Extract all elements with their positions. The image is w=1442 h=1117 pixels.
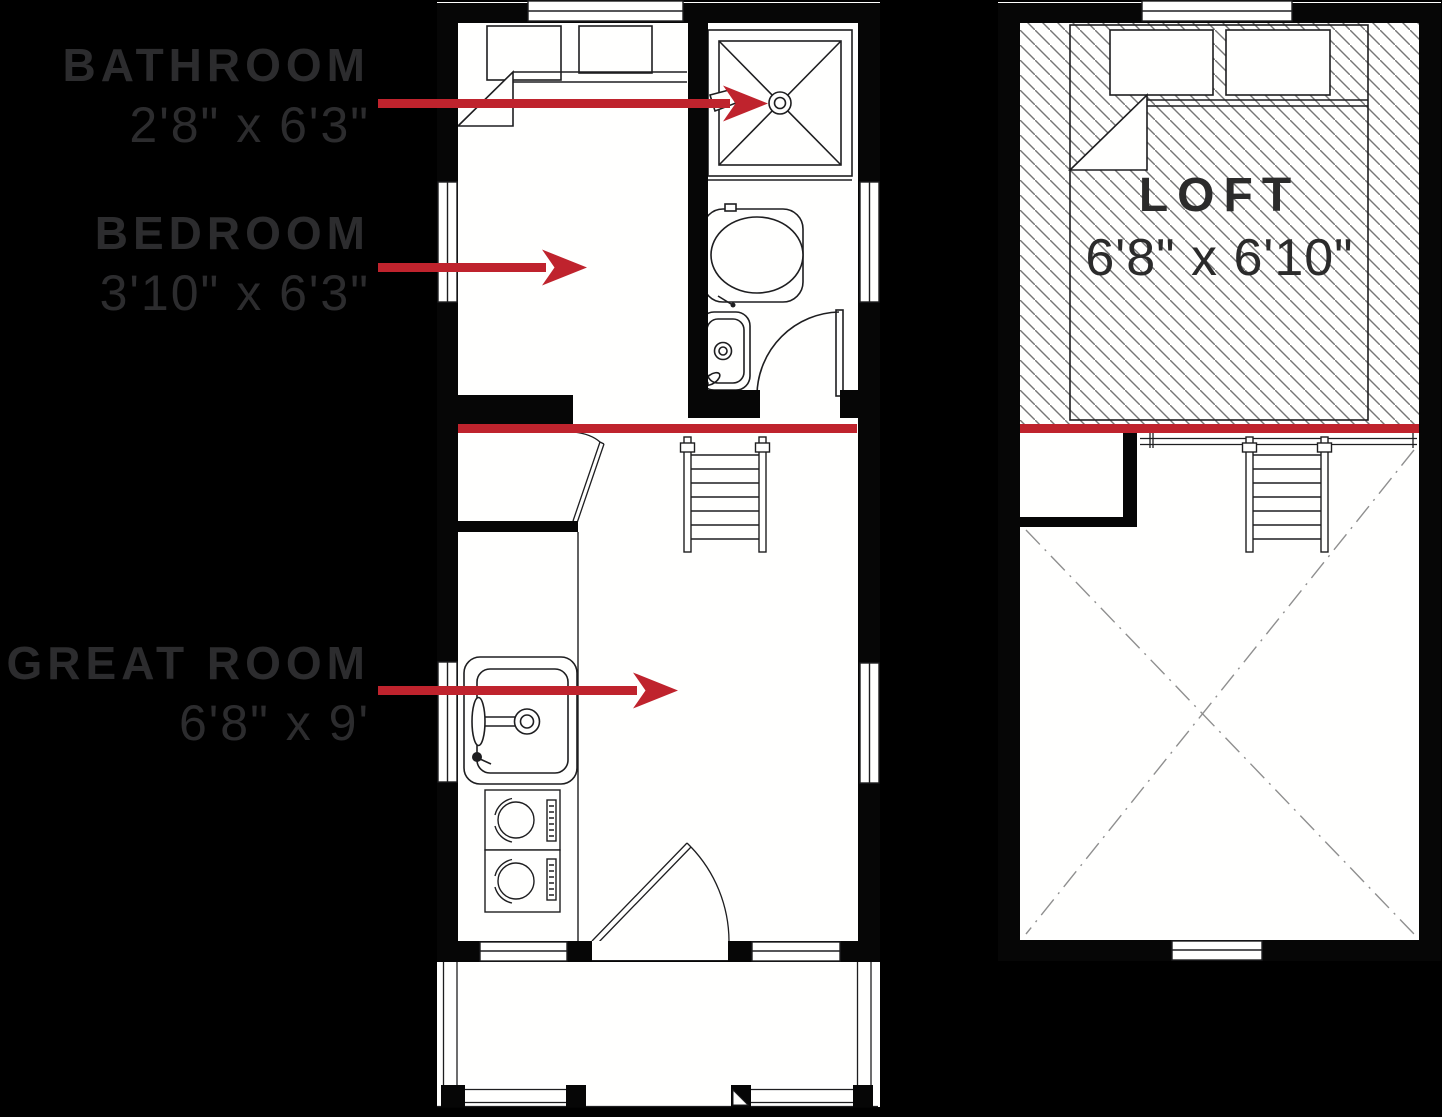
bedroom-label-group: BEDROOM 3'10" x 6'3" (0, 210, 370, 318)
shower-drain-icon (769, 92, 791, 114)
window-icon (1142, 1, 1292, 21)
toilet (703, 204, 803, 308)
window-icon (752, 942, 840, 961)
kitchen-sink (464, 657, 577, 784)
bathroom-dims: 2'8" x 6'3" (0, 100, 370, 150)
window-icon (1172, 941, 1262, 960)
loft-label-group: LOFT 6'8" x 6'10" (1020, 172, 1419, 284)
faucet-icon (515, 709, 540, 734)
loft-extent-line-main (458, 424, 857, 433)
cooktop (485, 790, 560, 912)
window-icon (860, 182, 879, 302)
window-icon (860, 663, 879, 783)
window-icon (438, 662, 457, 782)
porch-post (566, 1085, 586, 1107)
bedroom-label: BEDROOM (0, 210, 370, 256)
window-icon (438, 182, 457, 302)
window-icon (528, 1, 683, 21)
bathroom-label: BATHROOM (0, 42, 370, 88)
great-room-dims: 6'8" x 9' (0, 698, 370, 748)
loft-label: LOFT (1020, 172, 1419, 220)
bathroom-label-group: BATHROOM 2'8" x 6'3" (0, 42, 370, 150)
window-icon (480, 942, 567, 961)
porch-post (441, 1085, 465, 1107)
floor-plan-canvas (0, 0, 1442, 1117)
entry-door-opening (592, 941, 728, 961)
floor-plan-page: BATHROOM 2'8" x 6'3" BEDROOM 3'10" x 6'3… (0, 0, 1442, 1117)
loft-floor-plan (998, 1, 1441, 961)
loft-dims: 6'8" x 6'10" (1020, 232, 1419, 284)
loft-closet-bumpout (1020, 428, 1137, 527)
great-room-label-group: GREAT ROOM 6'8" x 9' (0, 640, 370, 748)
bedroom-dims: 3'10" x 6'3" (0, 268, 370, 318)
porch-post (853, 1085, 873, 1107)
great-room-label: GREAT ROOM (0, 640, 370, 686)
main-floor-plan (437, 1, 880, 1107)
loft-extent-line-loft (1020, 424, 1419, 433)
